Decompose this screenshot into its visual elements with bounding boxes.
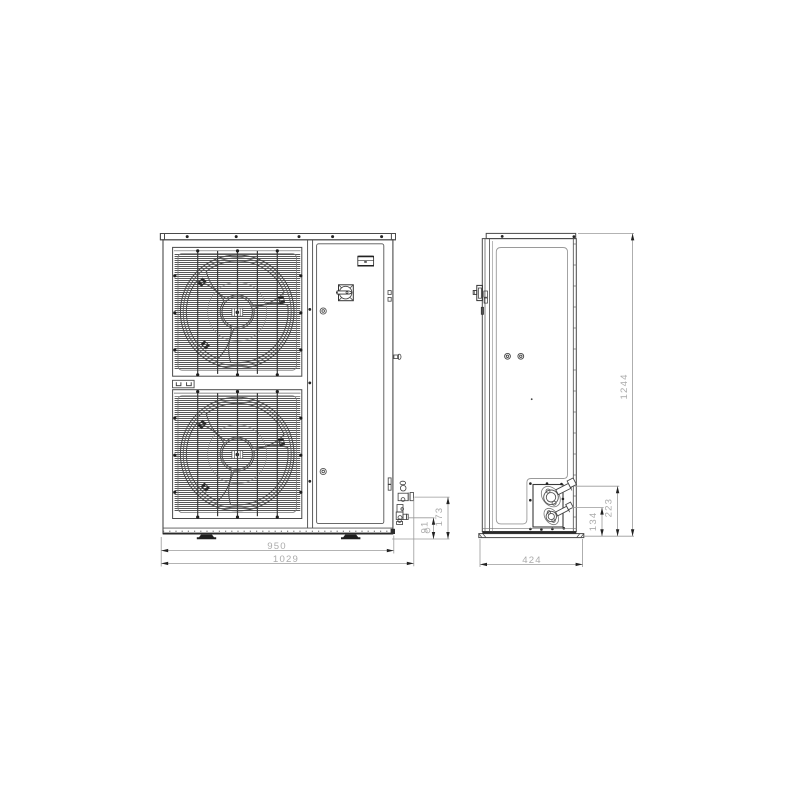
svg-text:173: 173 (434, 507, 445, 527)
svg-text:950: 950 (267, 541, 287, 552)
svg-text:1029: 1029 (273, 554, 299, 565)
svg-text:134: 134 (588, 512, 599, 532)
svg-text:1244: 1244 (619, 373, 630, 399)
svg-text:223: 223 (604, 498, 615, 518)
svg-text:424: 424 (522, 555, 542, 566)
svg-text:91: 91 (419, 520, 430, 533)
